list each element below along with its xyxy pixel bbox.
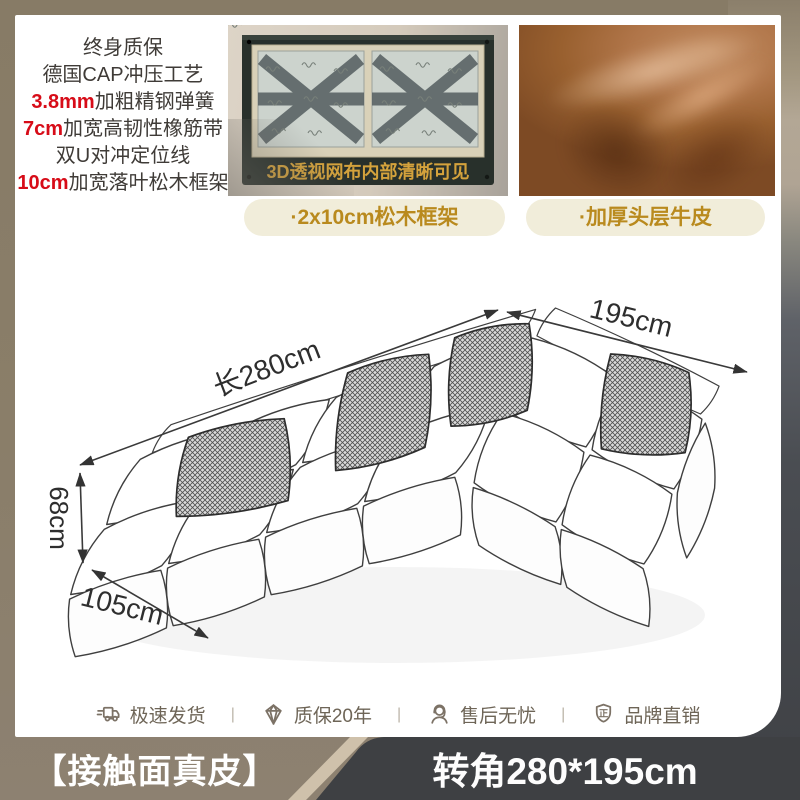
feature-line: 德国CAP冲压工艺 — [17, 62, 229, 89]
sofa-line-drawing: 长280cm 195cm 68cm 105cm — [25, 285, 755, 685]
shield-icon: 正 — [590, 701, 617, 728]
service-warranty: 质保20年 — [260, 701, 372, 728]
sofa-pillow — [601, 354, 691, 455]
badge-pine-frame: ·2x10cm松木框架 — [244, 199, 505, 236]
service-label: 售后无忧 — [460, 701, 536, 728]
truck-icon — [96, 701, 123, 728]
separator: | — [397, 706, 401, 724]
separator: | — [231, 706, 235, 724]
feature-list: 终身质保 德国CAP冲压工艺 3.8mm加粗精钢弹簧 7cm加宽高韧性橡筋带 双… — [17, 35, 229, 197]
separator: | — [561, 706, 565, 724]
feature-line: 3.8mm加粗精钢弹簧 — [17, 89, 229, 116]
feature-line: 双U对冲定位线 — [17, 143, 229, 170]
leather-photo — [519, 25, 775, 196]
service-after-sales: 售后无忧 — [426, 701, 536, 728]
service-label: 质保20年 — [294, 701, 372, 728]
feature-line: 10cm加宽落叶松木框架 — [17, 170, 229, 197]
bottom-bar-right-label: 转角280*195cm — [405, 741, 725, 795]
feature-line: 7cm加宽高韧性橡筋带 — [17, 116, 229, 143]
dimension-label-height: 68cm — [44, 486, 74, 550]
headset-icon — [426, 701, 453, 728]
services-row: 极速发货 | 质保20年 | 售后无忧 — [15, 701, 781, 728]
diamond-icon — [260, 701, 287, 728]
feature-line: 终身质保 — [17, 35, 229, 62]
service-brand-direct: 正 品牌直销 — [590, 701, 700, 728]
photo-shadow — [228, 119, 354, 196]
sofa-pillow — [449, 324, 533, 426]
service-label: 品牌直销 — [624, 701, 700, 728]
badge-leather: ·加厚头层牛皮 — [526, 199, 765, 236]
sofa-diagram: 长280cm 195cm 68cm 105cm — [25, 285, 755, 685]
content-card: 终身质保 德国CAP冲压工艺 3.8mm加粗精钢弹簧 7cm加宽高韧性橡筋带 双… — [15, 15, 781, 737]
frame-photo: 3D透视网布内部清晰可见 — [228, 25, 508, 196]
bottom-bar-left-label: 【接触面真皮】 — [20, 744, 290, 793]
shield-char: 正 — [599, 708, 609, 718]
service-label: 极速发货 — [130, 701, 206, 728]
product-infographic: 终身质保 德国CAP冲压工艺 3.8mm加粗精钢弹簧 7cm加宽高韧性橡筋带 双… — [0, 0, 800, 800]
service-fast-shipping: 极速发货 — [96, 701, 206, 728]
